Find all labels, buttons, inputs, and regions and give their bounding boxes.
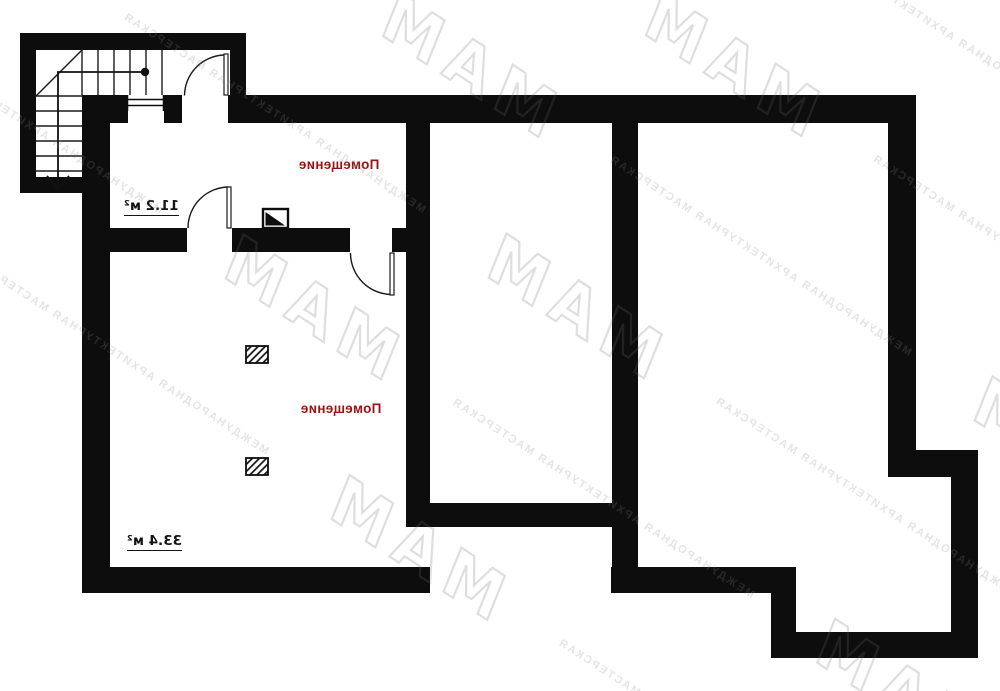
stairwell-top-wall [20, 33, 246, 50]
stairwell-right-wall [230, 33, 246, 96]
room-2-area: 33.4 м² [127, 533, 182, 551]
middle-room-right-wall [612, 123, 638, 593]
door-interior-left [188, 187, 231, 228]
door-interior-right [351, 253, 395, 295]
bottom-wall-left-section [82, 567, 430, 593]
interior-wall-seg-b [232, 228, 350, 252]
vent-hatch-icon [246, 458, 268, 475]
door-leaf [227, 187, 231, 228]
door-leaf [390, 253, 394, 295]
door-to-stairwell [185, 54, 229, 96]
stair-winder-line [36, 50, 82, 96]
floor-plan-page: Помещение 11.2 м² Помещение 33.4 м² МАММ… [0, 0, 1000, 691]
door-swing-arc [351, 253, 393, 295]
electrical-panel-icon [263, 209, 288, 228]
top-wall-seg-c [228, 95, 916, 123]
vent-hatch-icon [246, 346, 268, 363]
bottom-wall-right-section [611, 567, 796, 593]
door-leaf [224, 54, 228, 95]
right-outer-wall-upper [888, 95, 916, 450]
middle-room-left-wall [406, 123, 430, 527]
walls [20, 33, 978, 658]
room-1-area: 11.2 м² [124, 198, 179, 216]
interior-wall-seg-a [108, 228, 187, 252]
top-wall-seg-b [164, 95, 182, 123]
middle-room-bottom-wall [406, 503, 638, 527]
room-1-label: Помещение [293, 157, 385, 172]
door-swing-arc [188, 187, 229, 228]
stairwell-left-wall [20, 33, 36, 193]
left-outer-wall [82, 95, 110, 593]
room-2-label: Помещение [295, 401, 387, 416]
walk-line-start-dot [141, 68, 149, 76]
door-swing-arc [185, 55, 227, 96]
window [128, 95, 165, 111]
floor-plan-drawing [0, 0, 1000, 691]
right-outer-wall-lower [951, 450, 978, 658]
bottom-wall-far-right [771, 632, 978, 658]
